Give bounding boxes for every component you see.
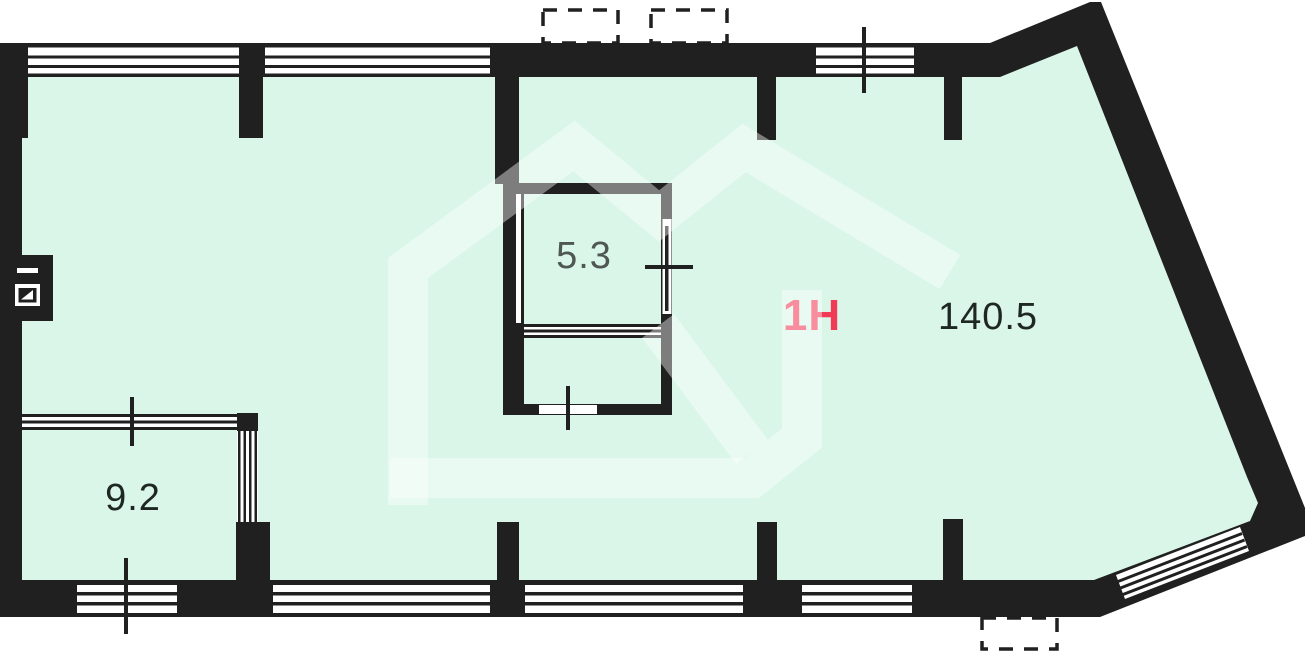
wall-pier bbox=[497, 522, 519, 583]
window-bottom-a bbox=[273, 585, 490, 613]
room-left-partition-top bbox=[22, 414, 237, 430]
window-bottom-b bbox=[525, 585, 743, 613]
room-area-label-left: 9.2 bbox=[105, 477, 161, 519]
floor-plan-svg: 5.3 9.2 140.5 1Н bbox=[0, 0, 1310, 651]
dimension-tick bbox=[862, 27, 866, 93]
dimension-tick bbox=[130, 397, 134, 446]
window-bottom-c bbox=[802, 585, 912, 613]
room-area-label-main: 140.5 bbox=[938, 296, 1038, 338]
room-area-label-storage: 5.3 bbox=[556, 235, 612, 277]
wall-pier bbox=[0, 43, 28, 138]
floor-plan-canvas: 5.3 9.2 140.5 1Н bbox=[0, 0, 1310, 651]
wall-pier bbox=[757, 522, 777, 583]
vent-shaft-dashed-box bbox=[651, 10, 727, 43]
window-top-left bbox=[26, 48, 239, 74]
electric-panel-icon bbox=[0, 255, 53, 321]
wall-pier bbox=[757, 76, 776, 140]
vent-shaft-dashed-box bbox=[982, 618, 1057, 649]
wall-pier bbox=[943, 519, 963, 583]
vent-shaft-dashed-box bbox=[543, 10, 618, 43]
dimension-tick bbox=[124, 558, 128, 634]
wall-pier bbox=[239, 43, 263, 138]
wall-pier bbox=[944, 76, 962, 140]
window-top-mid bbox=[265, 48, 490, 74]
floor-main-hall bbox=[22, 46, 1258, 580]
